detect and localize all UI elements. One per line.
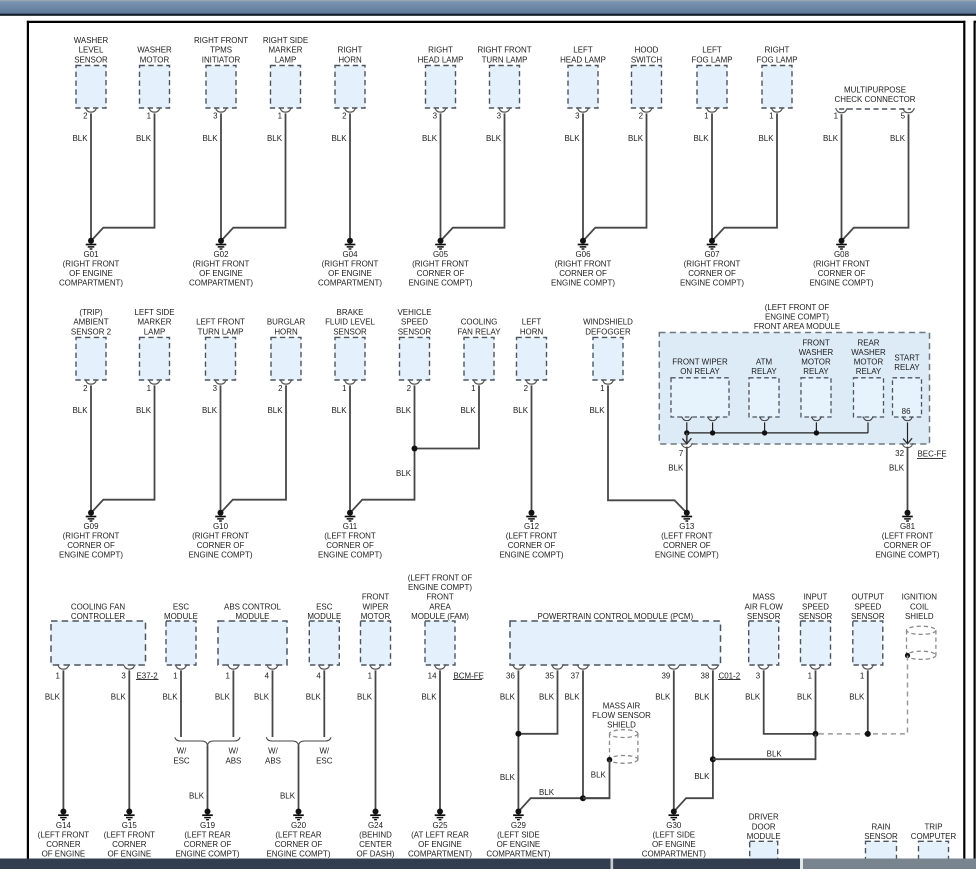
svg-text:BLK: BLK xyxy=(111,692,127,701)
svg-text:3: 3 xyxy=(213,112,218,121)
svg-text:CORNER OF: CORNER OF xyxy=(688,269,736,278)
svg-text:FAN RELAY: FAN RELAY xyxy=(457,327,501,336)
svg-text:CORNER OF: CORNER OF xyxy=(184,840,232,849)
svg-text:ABS CONTROL: ABS CONTROL xyxy=(224,602,281,611)
svg-text:(LEFT FRONT: (LEFT FRONT xyxy=(882,532,934,541)
svg-text:RELAY: RELAY xyxy=(894,363,920,372)
svg-text:BEC-FE: BEC-FE xyxy=(918,450,947,459)
svg-text:ENGINE COMPT): ENGINE COMPT) xyxy=(655,551,719,560)
svg-text:START: START xyxy=(894,354,919,363)
svg-text:2: 2 xyxy=(83,112,88,121)
svg-text:(LEFT REAR: (LEFT REAR xyxy=(184,830,230,839)
svg-text:1: 1 xyxy=(704,112,709,121)
svg-text:BLK: BLK xyxy=(655,692,671,701)
svg-text:3: 3 xyxy=(497,112,502,121)
svg-text:2: 2 xyxy=(278,384,283,393)
svg-text:FRONT: FRONT xyxy=(426,593,453,602)
svg-text:HORN: HORN xyxy=(338,55,362,64)
svg-text:BLK: BLK xyxy=(189,792,205,801)
svg-text:MOTOR: MOTOR xyxy=(140,55,170,64)
svg-text:CORNER OF: CORNER OF xyxy=(197,541,245,550)
svg-text:COMPUTER: COMPUTER xyxy=(911,832,957,841)
svg-text:ENGINE COMPT): ENGINE COMPT) xyxy=(500,551,564,560)
svg-text:LEVEL: LEVEL xyxy=(79,46,104,55)
svg-text:LEFT FRONT: LEFT FRONT xyxy=(196,318,245,327)
svg-text:LEFT: LEFT xyxy=(573,46,593,55)
svg-text:G08: G08 xyxy=(834,250,850,259)
svg-text:RIGHT: RIGHT xyxy=(428,46,453,55)
svg-text:BLK: BLK xyxy=(745,692,761,701)
svg-text:CORNER OF: CORNER OF xyxy=(67,541,115,550)
svg-text:COMPARTMENT): COMPARTMENT) xyxy=(59,279,123,288)
svg-text:WINDSHIELD: WINDSHIELD xyxy=(583,318,633,327)
svg-text:ENGINE COMPT): ENGINE COMPT) xyxy=(810,279,874,288)
svg-text:RELAY: RELAY xyxy=(803,367,829,376)
svg-text:CORNER: CORNER xyxy=(112,840,147,849)
svg-text:MOTOR: MOTOR xyxy=(854,358,884,367)
svg-text:LAMP: LAMP xyxy=(275,55,297,64)
svg-text:CORNER OF: CORNER OF xyxy=(818,269,866,278)
svg-text:SHIELD: SHIELD xyxy=(607,721,636,730)
svg-text:BLK: BLK xyxy=(267,406,283,415)
svg-text:1: 1 xyxy=(471,384,476,393)
svg-text:BLK: BLK xyxy=(396,406,412,415)
svg-text:38: 38 xyxy=(701,672,710,681)
svg-text:BLK: BLK xyxy=(591,771,607,780)
svg-text:2: 2 xyxy=(342,112,347,121)
svg-text:ENGINE COMPT): ENGINE COMPT) xyxy=(176,849,240,858)
svg-text:BLK: BLK xyxy=(564,692,580,701)
svg-text:MODULE: MODULE xyxy=(236,612,270,621)
svg-text:3: 3 xyxy=(121,672,126,681)
svg-text:SPEED: SPEED xyxy=(802,602,829,611)
svg-text:ENGINE COMPT): ENGINE COMPT) xyxy=(267,849,331,858)
svg-text:BLK: BLK xyxy=(668,464,684,473)
svg-text:(RIGHT FRONT: (RIGHT FRONT xyxy=(813,260,870,269)
svg-text:ENGINE COMPT): ENGINE COMPT) xyxy=(409,279,473,288)
svg-text:G02: G02 xyxy=(213,250,229,259)
svg-text:MODULE: MODULE xyxy=(164,612,198,621)
svg-text:ESC: ESC xyxy=(173,756,190,765)
svg-text:MULTIPURPOSE: MULTIPURPOSE xyxy=(844,85,906,94)
svg-text:1: 1 xyxy=(368,672,373,681)
svg-text:DRIVER: DRIVER xyxy=(749,813,779,822)
svg-text:ABS: ABS xyxy=(265,756,281,765)
svg-text:BLK: BLK xyxy=(421,692,437,701)
svg-text:32: 32 xyxy=(895,449,904,458)
svg-text:G12: G12 xyxy=(524,522,540,531)
svg-text:BLK: BLK xyxy=(162,692,178,701)
svg-text:ENGINE COMPT): ENGINE COMPT) xyxy=(551,279,615,288)
svg-text:AREA: AREA xyxy=(429,602,451,611)
svg-text:1: 1 xyxy=(342,384,347,393)
svg-text:BLK: BLK xyxy=(72,406,88,415)
svg-text:TURN LAMP: TURN LAMP xyxy=(198,327,244,336)
svg-text:1: 1 xyxy=(147,384,152,393)
svg-text:(LEFT REAR: (LEFT REAR xyxy=(275,830,321,839)
svg-text:RIGHT: RIGHT xyxy=(338,46,363,55)
svg-text:WASHER: WASHER xyxy=(799,348,834,357)
svg-text:AMBIENT: AMBIENT xyxy=(73,318,108,327)
svg-text:FRONT WIPER: FRONT WIPER xyxy=(672,358,728,367)
svg-text:2: 2 xyxy=(639,112,644,121)
svg-text:WASHER: WASHER xyxy=(74,36,109,45)
svg-text:COMPARTMENT): COMPARTMENT) xyxy=(189,279,253,288)
svg-text:ESC: ESC xyxy=(316,602,333,611)
svg-text:CHECK CONNECTOR: CHECK CONNECTOR xyxy=(835,95,916,104)
svg-text:3: 3 xyxy=(433,112,438,121)
svg-text:ENGINE COMPT): ENGINE COMPT) xyxy=(189,551,253,560)
svg-text:BLK: BLK xyxy=(564,134,580,143)
svg-text:G25: G25 xyxy=(432,821,448,830)
svg-text:(RIGHT FRONT: (RIGHT FRONT xyxy=(63,260,120,269)
svg-text:TURN LAMP: TURN LAMP xyxy=(482,55,528,64)
svg-text:MASS AIR: MASS AIR xyxy=(603,702,641,711)
svg-text:RIGHT SIDE: RIGHT SIDE xyxy=(263,36,308,45)
svg-text:DOOR: DOOR xyxy=(752,822,776,831)
svg-text:HORN: HORN xyxy=(520,327,544,336)
svg-text:BLK: BLK xyxy=(513,406,529,415)
svg-text:SENSOR: SENSOR xyxy=(333,327,367,336)
svg-text:2: 2 xyxy=(524,384,529,393)
svg-text:(RIGHT FRONT: (RIGHT FRONT xyxy=(192,532,249,541)
svg-text:OF ENGINE: OF ENGINE xyxy=(199,269,243,278)
svg-text:G10: G10 xyxy=(213,522,229,531)
svg-text:WIPER: WIPER xyxy=(362,602,388,611)
svg-text:G04: G04 xyxy=(342,250,358,259)
svg-text:G01: G01 xyxy=(83,250,99,259)
svg-text:IGNITION: IGNITION xyxy=(902,593,938,602)
svg-text:BLK: BLK xyxy=(849,692,865,701)
svg-text:(LEFT FRONT OF: (LEFT FRONT OF xyxy=(408,573,473,582)
svg-text:SPEED: SPEED xyxy=(401,318,428,327)
svg-text:ENGINE COMPT): ENGINE COMPT) xyxy=(318,551,382,560)
svg-text:G14: G14 xyxy=(56,821,72,830)
svg-text:BLK: BLK xyxy=(589,406,605,415)
svg-text:CORNER OF: CORNER OF xyxy=(884,541,932,550)
svg-text:BLK: BLK xyxy=(889,464,905,473)
svg-text:3: 3 xyxy=(213,384,218,393)
svg-text:1: 1 xyxy=(278,112,283,121)
svg-text:BLK: BLK xyxy=(267,134,283,143)
svg-text:COMPARTMENT): COMPARTMENT) xyxy=(486,849,550,858)
svg-text:3: 3 xyxy=(756,672,761,681)
svg-text:BLK: BLK xyxy=(693,134,709,143)
svg-text:1: 1 xyxy=(834,112,839,121)
svg-text:OF DASH): OF DASH) xyxy=(357,849,395,858)
svg-text:BLK: BLK xyxy=(202,406,218,415)
svg-text:LEFT: LEFT xyxy=(702,46,722,55)
svg-text:ESC: ESC xyxy=(316,756,333,765)
svg-text:7: 7 xyxy=(679,449,684,458)
svg-text:FOG LAMP: FOG LAMP xyxy=(756,55,797,64)
svg-text:G06: G06 xyxy=(575,250,591,259)
svg-text:ENGINE COMPT): ENGINE COMPT) xyxy=(680,279,744,288)
svg-text:MARKER: MARKER xyxy=(269,46,303,55)
svg-text:BLK: BLK xyxy=(45,692,61,701)
svg-text:1: 1 xyxy=(173,672,178,681)
svg-text:COOLING FAN: COOLING FAN xyxy=(71,602,126,611)
svg-text:SENSOR: SENSOR xyxy=(851,612,885,621)
svg-text:1: 1 xyxy=(808,672,813,681)
svg-text:OF ENGINE: OF ENGINE xyxy=(42,849,86,858)
svg-text:OF ENGINE: OF ENGINE xyxy=(418,840,462,849)
svg-text:86: 86 xyxy=(902,407,911,416)
svg-text:DEFOGGER: DEFOGGER xyxy=(585,327,631,336)
svg-text:BLK: BLK xyxy=(306,692,322,701)
svg-text:OF ENGINE: OF ENGINE xyxy=(497,840,541,849)
svg-text:1: 1 xyxy=(600,384,605,393)
svg-text:CORNER OF: CORNER OF xyxy=(275,840,323,849)
svg-text:SWITCH: SWITCH xyxy=(631,55,663,64)
svg-text:BLK: BLK xyxy=(460,406,476,415)
svg-text:SHIELD: SHIELD xyxy=(905,612,934,621)
svg-text:BLK: BLK xyxy=(331,406,347,415)
svg-text:CORNER OF: CORNER OF xyxy=(559,269,607,278)
svg-text:(RIGHT FRONT: (RIGHT FRONT xyxy=(555,260,612,269)
svg-text:2: 2 xyxy=(83,384,88,393)
svg-text:SPEED: SPEED xyxy=(854,602,881,611)
svg-text:2: 2 xyxy=(407,384,412,393)
svg-text:BLK: BLK xyxy=(500,773,516,782)
svg-text:SENSOR: SENSOR xyxy=(398,327,432,336)
svg-text:LEFT: LEFT xyxy=(522,318,542,327)
svg-text:HORN: HORN xyxy=(274,327,298,336)
svg-text:BLK: BLK xyxy=(331,134,347,143)
svg-text:(LEFT SIDE: (LEFT SIDE xyxy=(497,830,540,839)
svg-text:ENGINE COMPT): ENGINE COMPT) xyxy=(408,583,472,592)
svg-text:W/: W/ xyxy=(268,747,278,756)
svg-text:ENGINE COMPT): ENGINE COMPT) xyxy=(765,313,829,322)
svg-text:COOLING: COOLING xyxy=(461,318,498,327)
svg-text:W/: W/ xyxy=(177,747,187,756)
svg-text:BLK: BLK xyxy=(823,134,839,143)
svg-text:(RIGHT FRONT: (RIGHT FRONT xyxy=(412,260,469,269)
svg-text:BLK: BLK xyxy=(500,692,516,701)
svg-text:(LEFT FRONT: (LEFT FRONT xyxy=(661,532,713,541)
svg-text:G29: G29 xyxy=(511,821,527,830)
svg-text:(TRIP): (TRIP) xyxy=(79,308,103,317)
svg-text:POWERTRAIN CONTROL MODULE (PCM: POWERTRAIN CONTROL MODULE (PCM) xyxy=(537,612,693,621)
svg-text:ABS: ABS xyxy=(225,756,241,765)
svg-text:G09: G09 xyxy=(83,522,99,531)
svg-text:1: 1 xyxy=(769,112,774,121)
svg-text:BLK: BLK xyxy=(486,134,502,143)
svg-text:14: 14 xyxy=(428,672,437,681)
svg-text:1: 1 xyxy=(860,672,865,681)
svg-text:1: 1 xyxy=(55,672,60,681)
svg-text:RIGHT FRONT: RIGHT FRONT xyxy=(194,36,248,45)
svg-text:SENSOR: SENSOR xyxy=(864,832,898,841)
svg-text:BLK: BLK xyxy=(797,692,813,701)
svg-text:COIL: COIL xyxy=(910,602,929,611)
svg-text:FLUID LEVEL: FLUID LEVEL xyxy=(325,318,375,327)
svg-text:MARKER: MARKER xyxy=(138,318,172,327)
svg-text:(AT LEFT REAR: (AT LEFT REAR xyxy=(411,830,469,839)
svg-text:INITIATOR: INITIATOR xyxy=(202,55,241,64)
svg-text:G20: G20 xyxy=(291,821,307,830)
svg-text:G05: G05 xyxy=(433,250,449,259)
svg-text:G24: G24 xyxy=(368,821,384,830)
svg-text:OF ENGINE: OF ENGINE xyxy=(328,269,372,278)
svg-text:4: 4 xyxy=(265,672,270,681)
svg-text:(LEFT FRONT: (LEFT FRONT xyxy=(324,532,376,541)
svg-text:MASS: MASS xyxy=(752,593,775,602)
svg-text:LEFT SIDE: LEFT SIDE xyxy=(135,308,175,317)
svg-text:CONTROLLER: CONTROLLER xyxy=(71,612,126,621)
svg-text:CENTER: CENTER xyxy=(359,840,392,849)
svg-text:CORNER OF: CORNER OF xyxy=(508,541,556,550)
svg-text:G15: G15 xyxy=(122,821,138,830)
svg-text:BLK: BLK xyxy=(758,134,774,143)
svg-text:BLK: BLK xyxy=(254,692,270,701)
svg-text:(BEHIND: (BEHIND xyxy=(359,830,392,839)
svg-text:(LEFT FRONT: (LEFT FRONT xyxy=(506,532,558,541)
svg-text:(RIGHT FRONT: (RIGHT FRONT xyxy=(63,532,120,541)
svg-text:3: 3 xyxy=(575,112,580,121)
svg-text:MODULE (FAM): MODULE (FAM) xyxy=(411,612,469,621)
svg-text:BRAKE: BRAKE xyxy=(337,308,364,317)
svg-text:35: 35 xyxy=(545,672,554,681)
svg-text:BLK: BLK xyxy=(890,134,906,143)
svg-text:HEAD LAMP: HEAD LAMP xyxy=(560,55,606,64)
svg-text:MOTOR: MOTOR xyxy=(801,358,831,367)
svg-text:FOG LAMP: FOG LAMP xyxy=(691,55,732,64)
svg-text:RELAY: RELAY xyxy=(751,367,777,376)
svg-text:AIR FLOW: AIR FLOW xyxy=(745,602,784,611)
svg-text:ENGINE COMPT): ENGINE COMPT) xyxy=(876,551,940,560)
svg-text:HEAD LAMP: HEAD LAMP xyxy=(418,55,464,64)
svg-text:(RIGHT FRONT: (RIGHT FRONT xyxy=(684,260,741,269)
svg-text:BURGLAR: BURGLAR xyxy=(267,318,306,327)
svg-text:COMPARTMENT): COMPARTMENT) xyxy=(408,849,472,858)
svg-text:BLK: BLK xyxy=(280,792,296,801)
svg-text:G81: G81 xyxy=(900,522,916,531)
svg-text:ENGINE COMPT): ENGINE COMPT) xyxy=(59,551,123,560)
svg-text:SENSOR: SENSOR xyxy=(799,612,833,621)
svg-text:WASHER: WASHER xyxy=(851,348,886,357)
svg-text:BLK: BLK xyxy=(767,750,783,759)
svg-text:ON RELAY: ON RELAY xyxy=(680,367,720,376)
svg-text:REAR: REAR xyxy=(857,339,879,348)
svg-text:SENSOR: SENSOR xyxy=(74,55,108,64)
svg-text:OF ENGINE: OF ENGINE xyxy=(69,269,113,278)
svg-text:INPUT: INPUT xyxy=(804,593,828,602)
svg-text:39: 39 xyxy=(661,672,670,681)
svg-text:RIGHT FRONT: RIGHT FRONT xyxy=(477,46,531,55)
svg-text:4: 4 xyxy=(316,672,321,681)
svg-text:RIGHT: RIGHT xyxy=(765,46,790,55)
svg-text:BLK: BLK xyxy=(136,134,152,143)
svg-text:BLK: BLK xyxy=(539,692,555,701)
svg-text:G19: G19 xyxy=(200,821,216,830)
svg-text:HOOD: HOOD xyxy=(635,46,659,55)
svg-text:OF ENGINE: OF ENGINE xyxy=(652,840,696,849)
svg-text:RAIN: RAIN xyxy=(872,822,891,831)
svg-text:BLK: BLK xyxy=(694,692,710,701)
svg-text:(LEFT SIDE: (LEFT SIDE xyxy=(652,830,695,839)
svg-text:TPMS: TPMS xyxy=(210,46,232,55)
svg-text:CORNER OF: CORNER OF xyxy=(417,269,465,278)
svg-text:FRONT: FRONT xyxy=(362,593,389,602)
svg-text:BLK: BLK xyxy=(422,134,438,143)
svg-text:CORNER OF: CORNER OF xyxy=(663,541,711,550)
svg-text:1: 1 xyxy=(225,672,230,681)
svg-text:G11: G11 xyxy=(343,522,358,531)
svg-text:5: 5 xyxy=(901,112,906,121)
svg-text:CORNER OF: CORNER OF xyxy=(326,541,374,550)
svg-text:FLOW SENSOR: FLOW SENSOR xyxy=(592,711,651,720)
svg-text:FRONT: FRONT xyxy=(802,339,829,348)
svg-text:MOTOR: MOTOR xyxy=(361,612,391,621)
svg-text:BLK: BLK xyxy=(136,406,152,415)
svg-text:TRIP: TRIP xyxy=(924,822,942,831)
svg-text:(RIGHT FRONT: (RIGHT FRONT xyxy=(193,260,250,269)
svg-text:1: 1 xyxy=(147,112,152,121)
svg-text:LAMP: LAMP xyxy=(144,327,166,336)
svg-text:BLK: BLK xyxy=(396,469,412,478)
svg-text:SENSOR: SENSOR xyxy=(747,612,781,621)
svg-text:ESC: ESC xyxy=(173,602,190,611)
svg-text:BLK: BLK xyxy=(72,134,88,143)
svg-text:36: 36 xyxy=(506,672,515,681)
svg-text:VEHICLE: VEHICLE xyxy=(398,308,432,317)
svg-text:RELAY: RELAY xyxy=(856,367,882,376)
svg-text:OF ENGINE: OF ENGINE xyxy=(107,849,151,858)
svg-text:ATM: ATM xyxy=(756,358,772,367)
svg-text:BLK: BLK xyxy=(628,134,644,143)
svg-text:OUTPUT: OUTPUT xyxy=(851,593,884,602)
svg-text:COMPARTMENT): COMPARTMENT) xyxy=(642,849,706,858)
svg-text:G30: G30 xyxy=(666,821,682,830)
svg-text:COMPARTMENT): COMPARTMENT) xyxy=(318,279,382,288)
svg-text:(LEFT FRONT: (LEFT FRONT xyxy=(104,830,156,839)
svg-text:CORNER: CORNER xyxy=(46,840,81,849)
svg-text:(LEFT FRONT OF: (LEFT FRONT OF xyxy=(765,303,830,312)
svg-text:WASHER: WASHER xyxy=(137,46,172,55)
svg-text:BLK: BLK xyxy=(357,692,373,701)
svg-text:37: 37 xyxy=(571,672,580,681)
svg-text:G13: G13 xyxy=(679,522,695,531)
svg-text:BLK: BLK xyxy=(202,134,218,143)
svg-text:BLK: BLK xyxy=(215,692,231,701)
svg-text:BLK: BLK xyxy=(539,788,555,797)
svg-text:FRONT AREA MODULE: FRONT AREA MODULE xyxy=(754,322,840,331)
svg-text:MODULE: MODULE xyxy=(307,612,341,621)
svg-text:G07: G07 xyxy=(704,250,720,259)
svg-text:MODULE: MODULE xyxy=(747,832,781,841)
svg-text:W/: W/ xyxy=(229,747,239,756)
svg-text:W/: W/ xyxy=(319,747,329,756)
svg-text:SENSOR 2: SENSOR 2 xyxy=(71,327,112,336)
svg-text:(LEFT FRONT: (LEFT FRONT xyxy=(38,830,90,839)
svg-text:(RIGHT FRONT: (RIGHT FRONT xyxy=(322,260,379,269)
svg-text:BLK: BLK xyxy=(694,772,710,781)
